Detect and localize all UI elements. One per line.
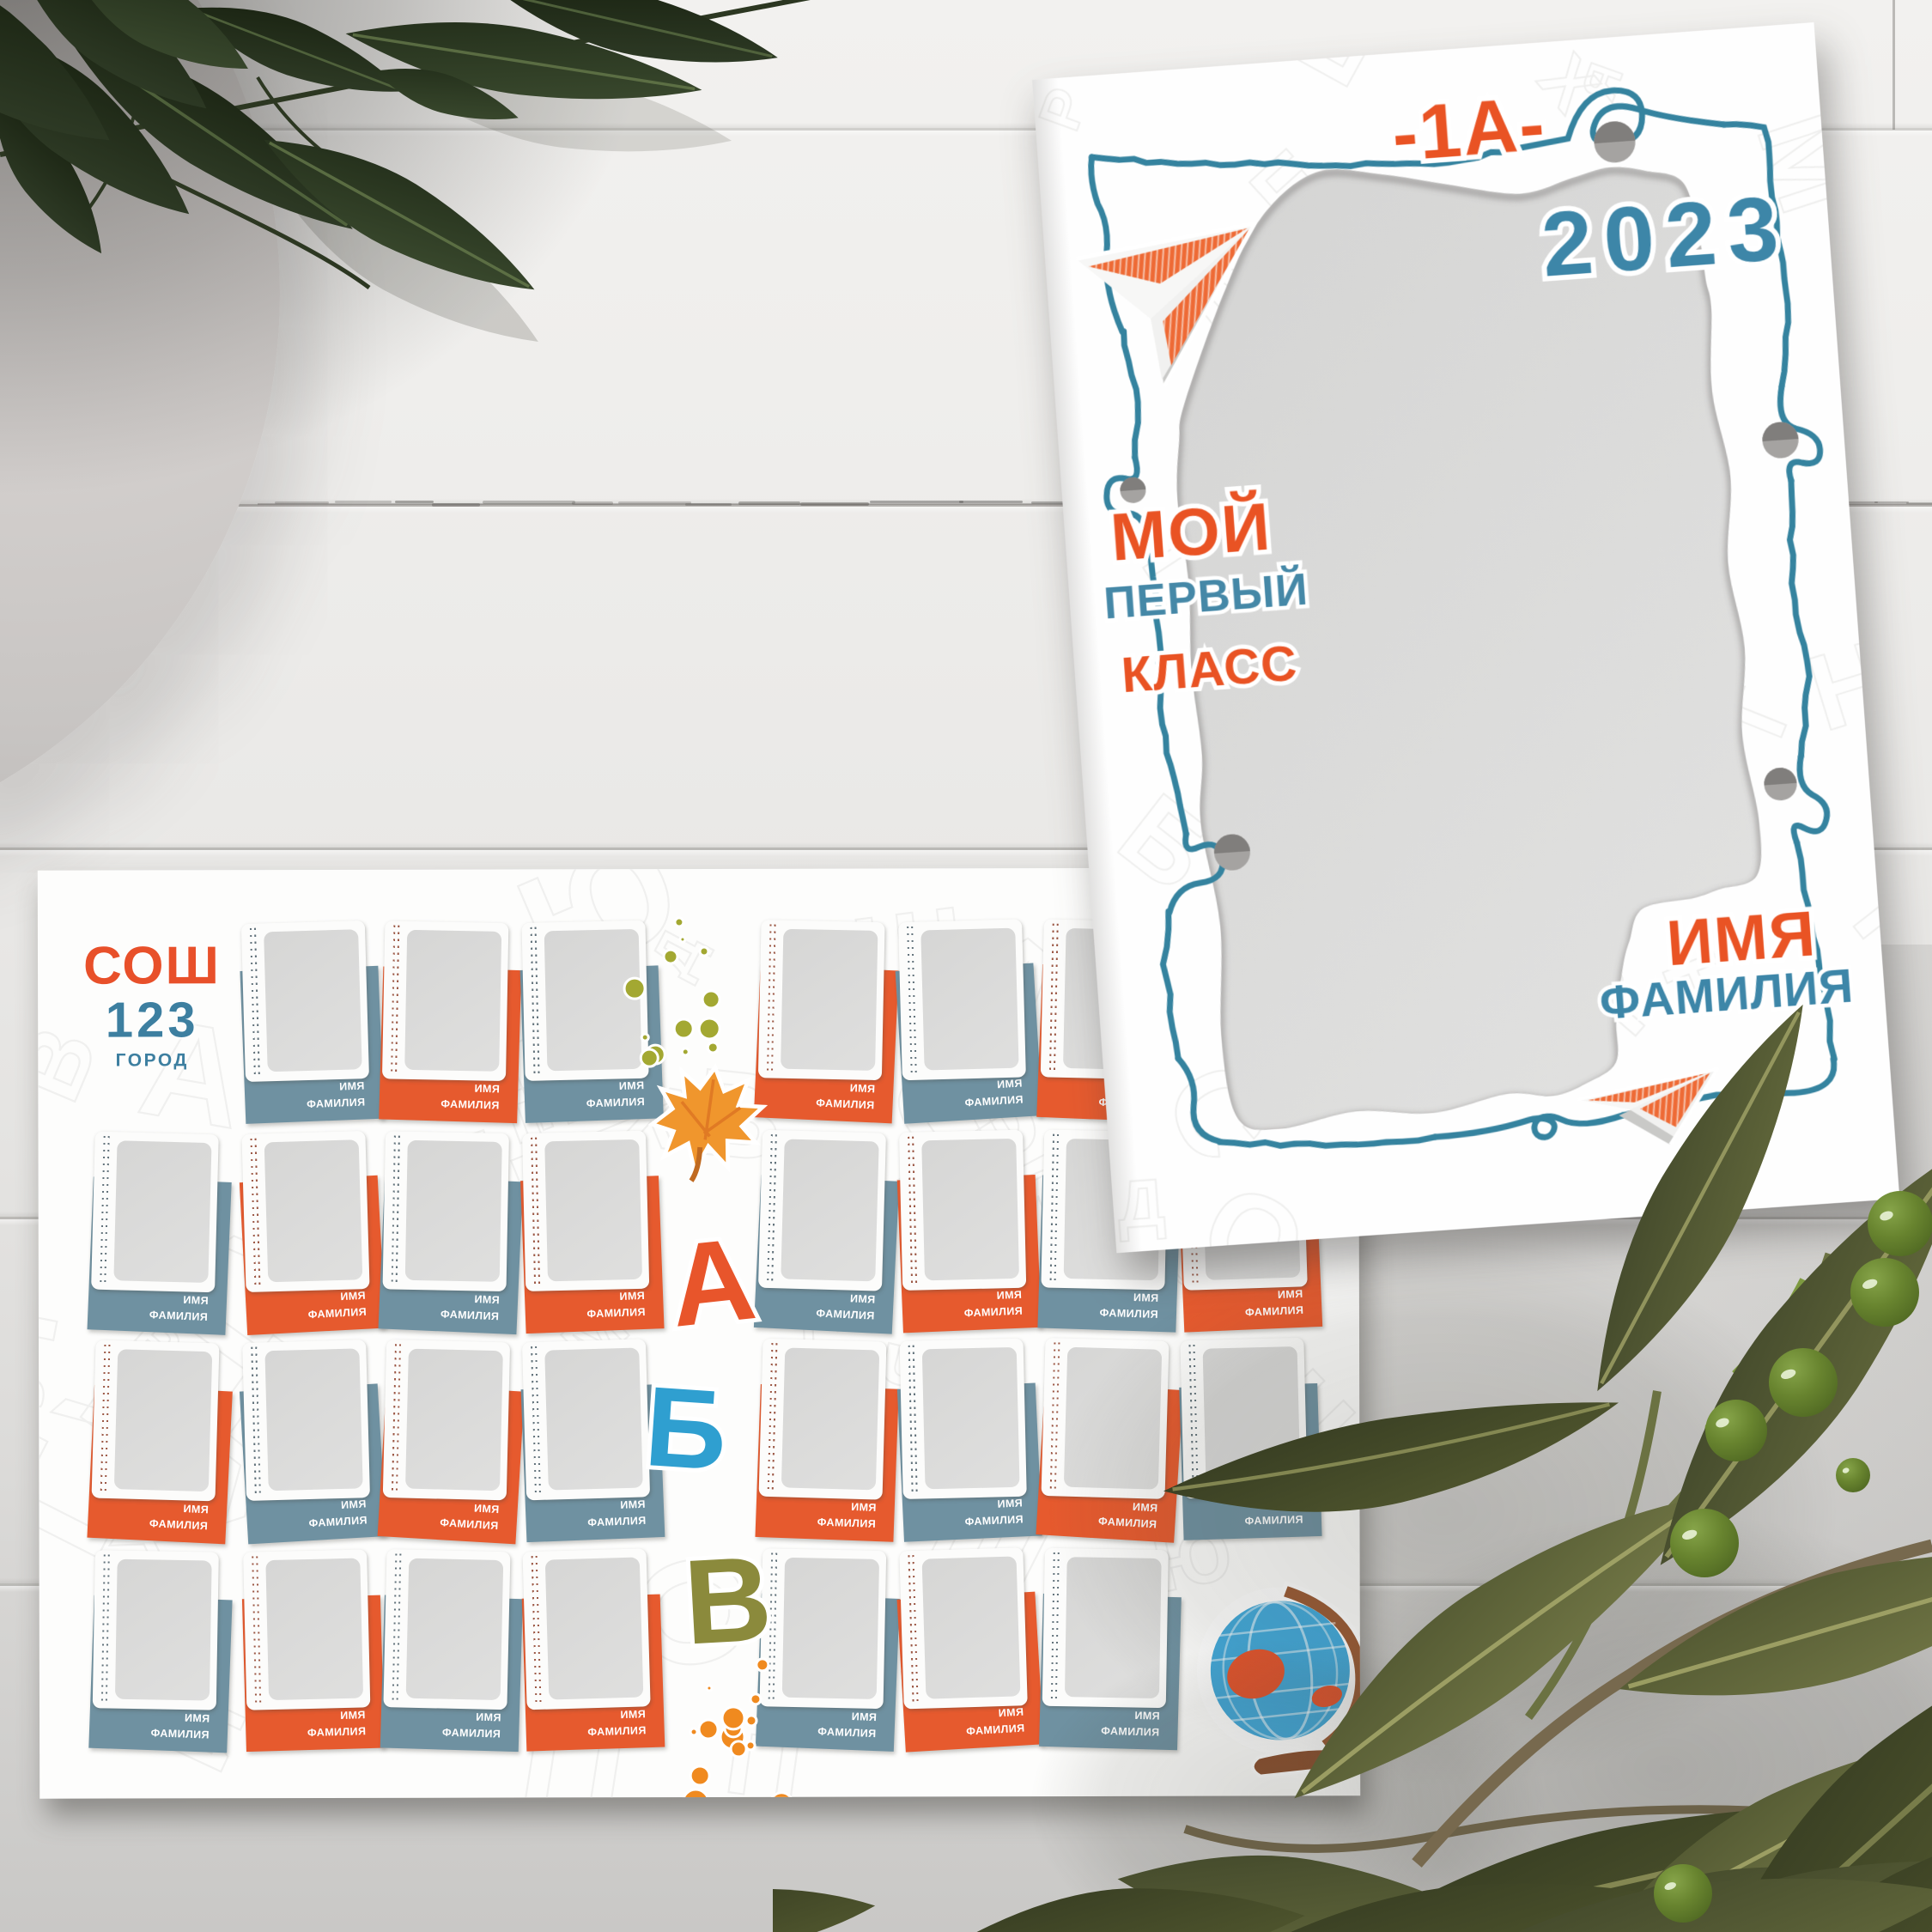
svg-text:В: В	[681, 1530, 775, 1669]
svg-text:Б: Б	[641, 1363, 732, 1494]
svg-text:-1А-: -1А-	[1389, 82, 1549, 177]
svg-text:2023: 2023	[1539, 177, 1793, 296]
svg-text:МОЙ: МОЙ	[1108, 488, 1273, 575]
svg-text:А: А	[664, 1212, 762, 1352]
